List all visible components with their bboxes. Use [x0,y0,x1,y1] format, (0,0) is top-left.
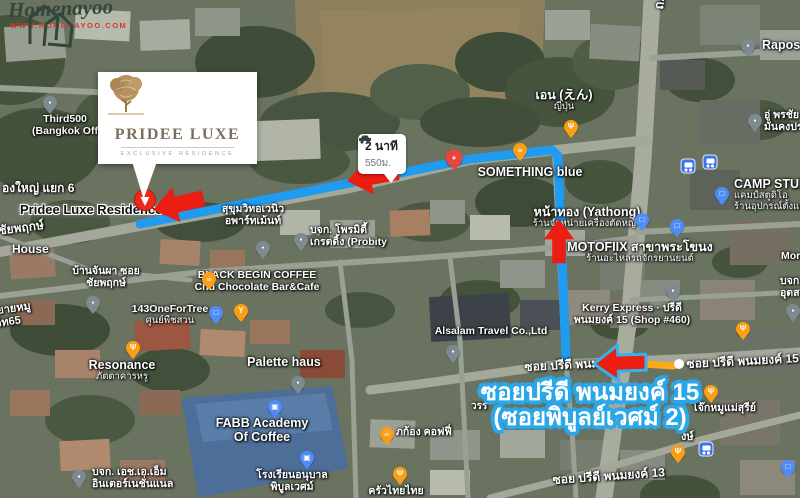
banner-line2: (ซอยพิบูลย์เวศม์ 2) [450,406,730,431]
soi-banner: ซอยปรีดี พนมยงค์ 15 (ซอยพิบูลย์เวศม์ 2) [450,381,730,431]
arrow-left-destination-icon [149,181,208,228]
car-icon [358,134,372,144]
pill-pointer [384,174,398,183]
arrow-up-icon [544,219,575,263]
route-distance: 550ม. [365,156,398,171]
pridee-luxe-card: PRIDEE LUXE EXCLUSIVE RESIDENCE [98,72,257,164]
arrow-left-bottom-icon [593,344,646,382]
tree-logo-icon [98,72,154,118]
map-canvas: ●Third500(Bangkok Off●Rapos Group●อู่ พร… [0,0,800,498]
card-title: PRIDEE LUXE [115,126,240,144]
watermark-brand: Homenayoo [8,0,128,23]
homenayoo-watermark: Homenayoo WWW.HOMENAYOO.COM [6,2,127,30]
card-subtitle: EXCLUSIVE RESIDENCE [121,147,235,157]
banner-line1: ซอยปรีดี พนมยงค์ 15 [450,381,730,406]
route-duration-bubble: 2 นาที 550ม. [358,134,406,174]
